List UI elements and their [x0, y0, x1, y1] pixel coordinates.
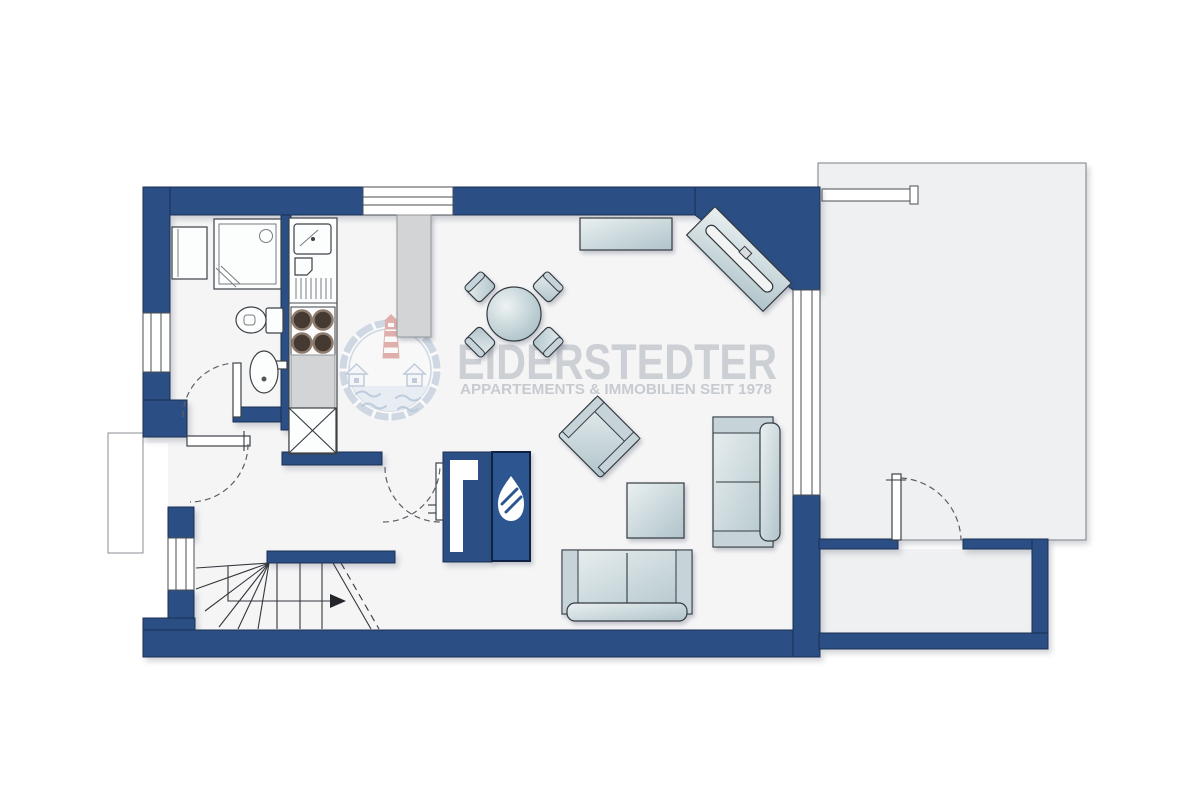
walled-patio-floor — [819, 549, 1038, 633]
window-left-stairs — [168, 538, 194, 590]
terrace-screen — [822, 186, 918, 204]
wall-segment-bottom — [143, 630, 820, 657]
tall-cabinet — [289, 408, 336, 453]
sideboard — [580, 218, 672, 250]
niche-opening — [450, 460, 478, 480]
shower — [214, 219, 281, 289]
wall-segment-right-lower — [793, 495, 820, 657]
niche-slot — [450, 480, 463, 552]
kitchen — [289, 218, 337, 454]
kitchen-counter-island — [397, 215, 431, 337]
entrance-porch — [108, 433, 143, 553]
toilet — [236, 307, 283, 333]
patio-wall-top-left — [819, 539, 898, 549]
coffee-table — [627, 483, 684, 538]
round-dining-table — [487, 287, 541, 341]
floor-plan-image: EIDERSTEDTER APPARTEMENTS & IMMOBILIEN S… — [0, 0, 1200, 800]
window-left-bathroom — [143, 313, 170, 372]
terrace — [818, 163, 1086, 540]
fireplace — [492, 452, 530, 561]
wall-segment-left-lower-a — [168, 507, 194, 538]
two-seat-sofa — [713, 417, 780, 547]
three-seat-sofa — [562, 550, 692, 621]
stove-icon — [291, 307, 335, 355]
window-right-terrace — [793, 290, 820, 495]
wall-segment-stair-parapet — [267, 551, 395, 563]
watermark-subtitle: APPARTEMENTS & IMMOBILIEN SEIT 1978 — [460, 381, 772, 398]
kitchen-counter — [291, 355, 335, 408]
patio-wall-bottom — [819, 633, 1048, 649]
wall-segment-entrance-block — [143, 400, 187, 437]
window-top — [363, 187, 453, 215]
washing-machine — [172, 227, 207, 279]
